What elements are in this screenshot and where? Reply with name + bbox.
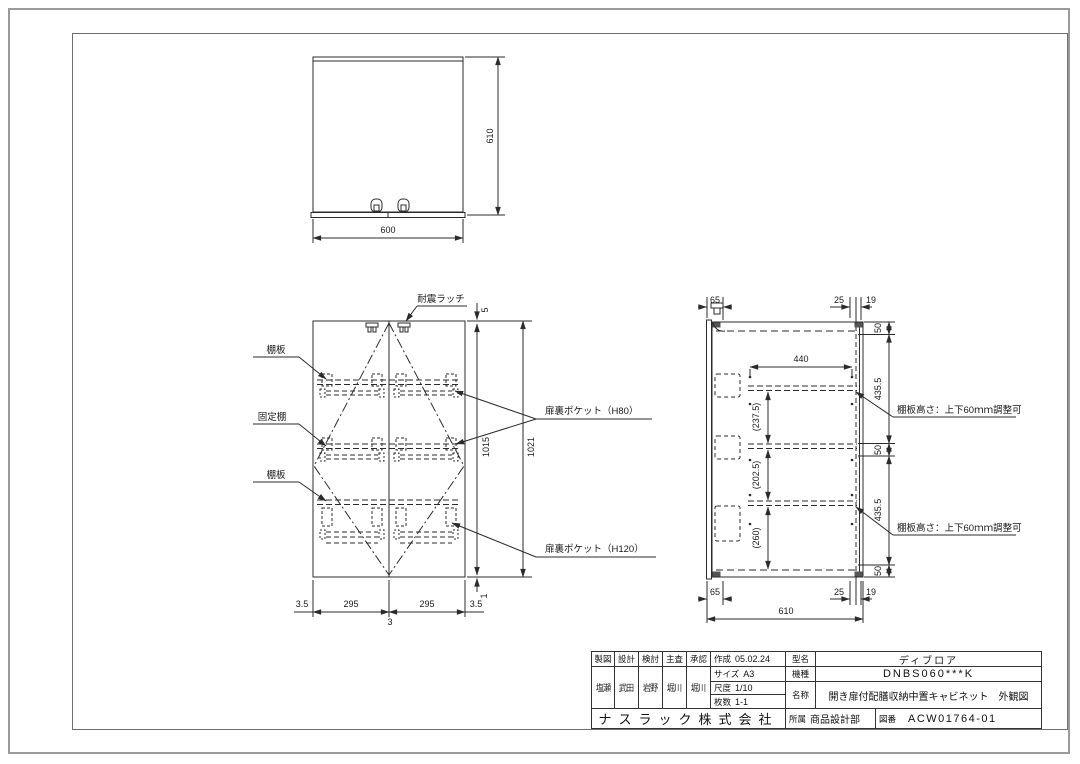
- name-value: 開き扉付配膳収納中置キャビネット 外観図: [816, 682, 1041, 709]
- model-label: 型名: [786, 652, 816, 667]
- corner-fittings: [713, 323, 863, 577]
- dim-top-front: 65: [710, 295, 720, 305]
- seismic-latch-left: [366, 323, 378, 332]
- svg-text:扉裏ポケット（H80）: 扉裏ポケット（H80）: [545, 405, 638, 417]
- side-view-body: [712, 322, 863, 577]
- title-block: 製図 設計 検討 主査 承認 作成 05.02.24 型名 ディブロア 塩瀬 武…: [591, 651, 1042, 729]
- cad-drawing: 610 600: [0, 0, 1080, 764]
- dim-clear-mid: (202.5): [751, 461, 761, 490]
- top-view-body: [313, 57, 463, 212]
- dept-cell: 所属 商品設計部: [786, 709, 876, 728]
- side-view: 440 (237.5) (202.5) (260) 65 25 19 65: [698, 295, 1022, 623]
- scale-cell: 尺度 1/10: [711, 682, 786, 695]
- side-door-pockets: [715, 374, 740, 541]
- seismic-latch-right: [398, 323, 410, 332]
- stamp-shusa: 堀川: [667, 681, 681, 694]
- side-shelf-lines: [748, 386, 857, 506]
- role-header-kento: 検討: [639, 652, 663, 667]
- dim-shelf-depth: 440: [793, 354, 808, 364]
- role-header-shusa: 主査: [663, 652, 687, 667]
- door-handle-left-detail: [374, 205, 379, 211]
- label-fixed-shelf: 固定棚: [253, 411, 326, 446]
- label-pocket-h120: 扉裏ポケット（H120）: [452, 523, 656, 557]
- stamp-shonin: 堀川: [691, 681, 705, 694]
- side-door-panel: [707, 320, 712, 579]
- top-view-depth-dim: 610: [485, 128, 495, 143]
- drawing-no-label: 図番: [879, 713, 896, 725]
- label-pocket-h80: 扉裏ポケット（H80）: [455, 391, 652, 444]
- dim-door-height: 1015: [481, 437, 491, 457]
- dim-seg-435-b: 435.5: [873, 499, 883, 522]
- sheets-value: 1-1: [735, 697, 748, 707]
- dim-total-height: 1021: [526, 437, 536, 457]
- dim-bottom-back-panel: 19: [866, 587, 876, 597]
- scale-value: 1/10: [735, 683, 753, 693]
- stamp-seizu: 塩瀬: [596, 681, 610, 694]
- drawing-no-value: ACW01764-01: [908, 713, 997, 725]
- label-seismic-latch: 耐震ラッチ: [406, 293, 467, 321]
- model-value: ディブロア: [816, 652, 1041, 667]
- dim-seg-50-a: 50: [873, 323, 883, 333]
- front-view: 棚板 固定棚 棚板 耐震ラッチ 扉裏ポケット（H80）: [253, 293, 656, 627]
- label-shelf-top: 棚板: [253, 344, 326, 379]
- dim-right-gap: 3.5: [470, 599, 483, 609]
- label-shelf-bottom: 棚板: [253, 469, 326, 501]
- dim-total-depth: 610: [778, 606, 793, 616]
- stamp-sekkei: 武田: [619, 681, 633, 694]
- svg-text:扉裏ポケット（H120）: 扉裏ポケット（H120）: [545, 543, 644, 555]
- dim-top-back-offset: 25: [834, 295, 844, 305]
- svg-text:棚板: 棚板: [266, 469, 286, 481]
- scale-label: 尺度: [714, 682, 731, 694]
- dim-clear-top: (237.5): [751, 403, 761, 432]
- role-header-seizu: 製図: [592, 652, 615, 667]
- sheets-cell: 枚数 1-1: [711, 695, 786, 709]
- svg-text:耐震ラッチ: 耐震ラッチ: [417, 293, 465, 305]
- svg-text:棚板: 棚板: [266, 344, 286, 356]
- dim-door-width-right: 295: [419, 599, 434, 609]
- role-header-shonin: 承認: [687, 652, 711, 667]
- series-label: 機種: [786, 667, 816, 682]
- dim-seg-50-c: 50: [873, 566, 883, 576]
- dim-clear-bottom: (260): [751, 527, 761, 548]
- dim-top-gap: 5: [480, 307, 490, 312]
- dept-value: 商品設計部: [810, 711, 860, 726]
- size-cell: サイズ A3: [711, 667, 786, 682]
- company-name: ナスラック株式会社: [592, 709, 786, 728]
- top-view: 610 600: [311, 57, 505, 243]
- dim-seg-50-b: 50: [873, 445, 883, 455]
- dim-bottom-gap: 1: [479, 593, 489, 598]
- dim-door-width-left: 295: [343, 599, 358, 609]
- dim-bottom-back-offset: 25: [834, 587, 844, 597]
- dim-bottom-front: 65: [710, 587, 720, 597]
- role-header-sekkei: 設計: [615, 652, 639, 667]
- created-date: 05.02.24: [735, 654, 770, 664]
- created-label: 作成: [714, 653, 731, 665]
- size-label: サイズ: [714, 668, 739, 680]
- stamp-kento: 岩野: [643, 681, 657, 694]
- series-value: DNBS060***K: [816, 667, 1041, 682]
- svg-text:棚板高さ：上下60ｍｍ調整可: 棚板高さ：上下60ｍｍ調整可: [897, 522, 1022, 534]
- svg-text:固定棚: 固定棚: [258, 411, 287, 423]
- shelf-pin-holes: [749, 376, 854, 526]
- dept-label: 所属: [789, 713, 806, 725]
- door-handle-right-detail: [401, 205, 406, 211]
- dim-left-gap: 3.5: [296, 599, 309, 609]
- name-label: 名称: [786, 682, 816, 709]
- svg-text:棚板高さ：上下60ｍｍ調整可: 棚板高さ：上下60ｍｍ調整可: [897, 404, 1022, 416]
- top-view-width-dim: 600: [380, 225, 395, 235]
- size-value: A3: [743, 669, 754, 679]
- dim-top-back-panel: 19: [866, 295, 876, 305]
- dim-seg-435-a: 435.5: [873, 378, 883, 401]
- dim-center-gap: 3: [387, 617, 392, 627]
- drawing-sheet: 610 600: [0, 0, 1080, 764]
- drawing-no-cell: 図番 ACW01764-01: [876, 709, 1041, 728]
- sheets-label: 枚数: [714, 696, 731, 708]
- created-cell: 作成 05.02.24: [711, 652, 786, 667]
